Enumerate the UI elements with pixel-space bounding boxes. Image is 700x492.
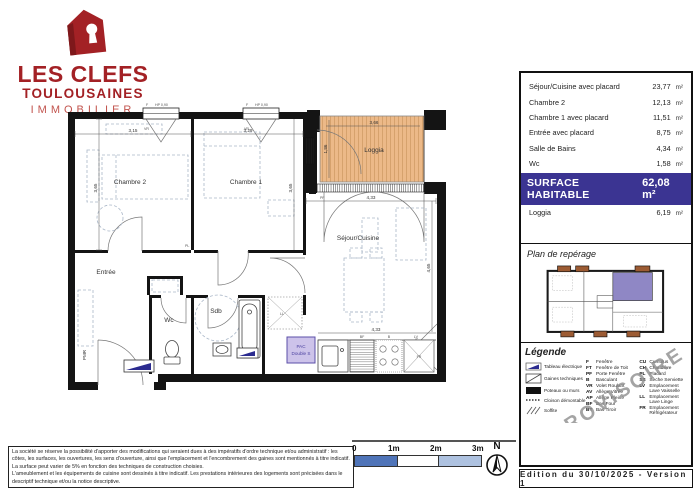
area-unit: m² — [676, 161, 683, 168]
pmr-label: PMR — [82, 349, 87, 360]
area-value: 23,77 — [652, 82, 670, 91]
area-unit: m² — [676, 210, 683, 217]
area-row: Wc 1,58m² — [527, 156, 685, 171]
legend-symbol-row: Soffite — [525, 406, 586, 415]
scale-segment-3 — [439, 456, 481, 466]
fr-tag: FR — [417, 355, 422, 359]
area-value: 6,19 — [656, 208, 670, 217]
legend-abbr-row: LVEmplacement Lave Vaisselle — [639, 384, 687, 394]
removable-partition-icon — [525, 397, 542, 403]
abbr-key: FR — [639, 406, 649, 416]
legend-abbr-right-column: CUCumulus CHChaudière PLPlacard SSSèche … — [639, 360, 687, 418]
kitchen-width-dim: 4,33 — [372, 327, 381, 332]
legend-section: Légende PROVISOIRE Tableau électrique Ga… — [521, 342, 691, 423]
disclaimer-box: La société se réserve la possibilité d'a… — [8, 446, 354, 488]
sdb-label: Sdb — [210, 308, 222, 315]
legend-abbr-row: FREmplacement Réfrigérateur — [639, 406, 687, 416]
areas-table: Séjour/Cuisine avec placard 23,77m² Cham… — [521, 73, 691, 221]
sejour-label: Séjour/Cuisine — [337, 235, 380, 242]
pl-tag: PL — [185, 244, 189, 248]
abbr-key: BT — [586, 408, 596, 413]
abbr-key: VR — [586, 384, 596, 389]
legend-symbol-label: Tableau électrique — [544, 364, 582, 369]
abbr-value: Allège Vitrée — [596, 390, 623, 395]
north-arrow: N — [482, 442, 512, 483]
legend-symbol-label: Cloison démontable — [544, 398, 585, 403]
abbr-value: Cumulus — [649, 360, 668, 365]
area-unit: m² — [676, 100, 683, 107]
pac-box: PAC Double S — [287, 337, 315, 363]
legend-abbr-row: PFPorte Fenêtre — [586, 372, 639, 377]
area-value: 4,34 — [656, 144, 670, 153]
compass-icon — [484, 452, 510, 478]
abbr-value: Emplacement Lave Linge — [649, 395, 687, 405]
floor-plan-page: LES CLEFS TOULOUSAINES IMMOBILIER — [0, 0, 700, 492]
chambre1-label: Chambre 1 — [230, 179, 263, 186]
area-value: 8,75 — [656, 128, 670, 137]
abbr-value: Basculant — [596, 378, 617, 383]
legend-abbr-row: FTFenêtre de Toit — [586, 366, 639, 371]
legend-abbr-row: BBasculant — [586, 378, 639, 383]
window-vr-tag: VR — [144, 127, 149, 131]
kitchen-units: FR BF B LV — [318, 335, 436, 372]
pac-label-2: Double S — [292, 351, 311, 356]
loggia-width-dim: 3,66 — [370, 120, 379, 125]
area-label: Entrée avec placard — [529, 128, 594, 137]
wall-post-icon — [525, 386, 542, 395]
abbr-value: Emplacement Réfrigérateur — [649, 406, 687, 416]
abbr-key: SS — [639, 378, 649, 383]
legend-abbr-row: SSSèche Serviette — [639, 378, 687, 383]
area-row: Chambre 2 12,13m² — [527, 94, 685, 109]
plan-reperage-section: Plan de repérage — [521, 243, 691, 342]
abbr-value: Chaudière — [649, 366, 671, 371]
legend-symbol-row: Poteaux ou murs — [525, 386, 586, 395]
abbr-value: Fenêtre de Toit — [596, 366, 628, 371]
abbr-value: Fenêtre — [596, 360, 613, 365]
abbr-key: F — [586, 360, 596, 365]
area-label: Salle de Bains — [529, 144, 576, 153]
abbr-key: LL — [639, 395, 649, 405]
window-chambre2: F HP 0,90 VR — [143, 103, 179, 142]
area-label: Séjour/Cuisine avec placard — [529, 82, 620, 91]
abbr-key: LV — [639, 384, 649, 394]
area-unit: m² — [676, 130, 683, 137]
legend-abbr-row: FFenêtre — [586, 360, 639, 365]
scale-bar-segments — [354, 455, 482, 467]
abbr-value: Emplacement Lave Vaisselle — [649, 384, 687, 394]
abbr-value: Allège Pleine — [596, 396, 624, 401]
surface-habitable-label: SURFACE HABITABLE — [527, 177, 642, 201]
legend-abbr-row: BTBas Tiroir — [586, 408, 639, 413]
legend-abbr-row: PLPlacard — [639, 372, 687, 377]
area-label: Wc — [529, 159, 540, 168]
legend-abbr-left-column: FFenêtre FTFenêtre de Toit PFPorte Fenêt… — [586, 360, 639, 418]
window-f-tag: F — [146, 103, 149, 107]
area-value: 12,13 — [652, 98, 670, 107]
scale-segment-2 — [397, 456, 439, 466]
abbr-key: FT — [586, 366, 596, 371]
mini-floor-plan — [527, 261, 687, 341]
wc-label: Wc — [164, 317, 174, 324]
abbr-value: Placard — [649, 372, 665, 377]
ll-tag: LL — [280, 312, 284, 316]
abbr-value: Porte Fenêtre — [596, 372, 625, 377]
chambre1-width-dim: 3,29 — [244, 128, 253, 133]
legend-symbol-row: Tableau électrique — [525, 362, 586, 371]
disclaimer-paragraph-1: La société se réserve la possibilité d'a… — [12, 449, 350, 471]
abbr-key: PF — [586, 372, 596, 377]
loggia-height-dim: 1,86 — [323, 144, 328, 153]
window-chambre1: F HP 0,90 VR — [243, 103, 279, 142]
plan-reperage-title: Plan de repérage — [527, 249, 685, 259]
soffit-icon — [525, 406, 542, 415]
abbr-key: AV — [586, 390, 596, 395]
surface-habitable-value: 62,08 m² — [642, 177, 685, 201]
area-row: Séjour/Cuisine avec placard 23,77m² — [527, 79, 685, 94]
area-label: Loggia — [529, 208, 551, 217]
chambre2-width-dim: 3,15 — [129, 128, 138, 133]
abbr-key: BF — [586, 402, 596, 407]
area-row: Chambre 1 avec placard 11,51m² — [527, 110, 685, 125]
abbr-key: CU — [639, 360, 649, 365]
surface-habitable-banner: SURFACE HABITABLE 62,08 m² — [521, 173, 691, 205]
legend-symbol-row: Gaines techniques — [525, 373, 586, 384]
legend-abbr-row: VRVolet Roulant — [586, 384, 639, 389]
kitchen-tag-1: BF — [360, 335, 365, 339]
interior-walls — [75, 119, 317, 374]
loggia-area-row: Loggia 6,19m² — [527, 205, 685, 220]
legend-abbr-row: CHChaudière — [639, 366, 687, 371]
area-value: 1,58 — [656, 159, 670, 168]
scale-segment-1 — [355, 456, 397, 466]
legend-symbols-column: Tableau électrique Gaines techniques Pot… — [525, 360, 586, 418]
bay-pf-tag: PF — [320, 196, 325, 200]
legend-abbr-row: LLEmplacement Lave Linge — [639, 395, 687, 405]
scale-tick: 1m — [388, 444, 400, 453]
closet-niche — [152, 280, 178, 292]
legend-symbol-row: Cloison démontable — [525, 397, 586, 403]
entree-label: Entrée — [96, 269, 116, 276]
sejour-height-dim: 4,65 — [426, 263, 431, 272]
chambre1-height-dim: 3,65 — [288, 183, 293, 192]
kitchen-tag-3: LV — [414, 335, 419, 339]
electrical-panel-icon — [525, 362, 542, 371]
area-row: Entrée avec placard 8,75m² — [527, 125, 685, 140]
scale-tick: 2m — [430, 444, 442, 453]
legend-symbol-label: Gaines techniques — [544, 376, 583, 381]
window-hp-tag: HP 0,90 — [255, 103, 268, 107]
kitchen-tag-2: B — [388, 335, 391, 339]
area-value: 11,51 — [653, 113, 671, 122]
sejour-width-dim: 4,33 — [367, 195, 376, 200]
loggia-zone: Loggia 3,66 1,86 — [320, 116, 424, 182]
legend-abbr-row: APAllège Pleine — [586, 396, 639, 401]
legend-abbr-row: BFBas Four — [586, 402, 639, 407]
area-label: Chambre 1 avec placard — [529, 113, 609, 122]
abbr-value: Volet Roulant — [596, 384, 625, 389]
side-window — [305, 138, 314, 164]
legend-abbr-row: CUCumulus — [639, 360, 687, 365]
abbr-key: AP — [586, 396, 596, 401]
area-label: Chambre 2 — [529, 98, 565, 107]
north-label: N — [482, 442, 512, 452]
abbr-value: Sèche Serviette — [649, 378, 683, 383]
chambre2-label: Chambre 2 — [114, 179, 147, 186]
legend-symbol-label: Soffite — [544, 408, 557, 413]
area-unit: m² — [676, 84, 683, 91]
floor-plan-drawing: Loggia 3,66 1,86 PF F HP 0,90 VR F HP 0,… — [58, 100, 454, 394]
window-f-tag: F — [246, 103, 249, 107]
area-row: Salle de Bains 4,34m² — [527, 141, 685, 156]
scale-tick: 0 — [352, 444, 356, 453]
chambre2-height-dim: 3,65 — [93, 183, 98, 192]
abbr-key: PL — [639, 372, 649, 377]
pac-label-1: PAC — [296, 344, 306, 349]
area-unit: m² — [676, 146, 683, 153]
disclaimer-paragraph-2: L'ameublement et les équipements de cuis… — [12, 471, 350, 486]
house-key-logo-icon — [48, 6, 118, 58]
abbr-value: Bas Tiroir — [596, 408, 616, 413]
abbr-value: Bas Four — [596, 402, 615, 407]
info-panel: Séjour/Cuisine avec placard 23,77m² Cham… — [519, 71, 693, 467]
window-hp-tag: HP 0,90 — [155, 103, 168, 107]
edition-bar: Edition du 30/10/2025 - Version 1 — [519, 469, 693, 488]
brand-line-1: LES CLEFS — [8, 63, 158, 86]
area-unit: m² — [676, 115, 683, 122]
technical-duct-icon — [525, 373, 542, 384]
legend-title: Légende — [525, 347, 687, 358]
laundry-unit: LL — [268, 297, 302, 329]
bay-window — [316, 184, 424, 192]
abbr-key: B — [586, 378, 596, 383]
legend-symbol-label: Poteaux ou murs — [544, 388, 579, 393]
abbr-key: CH — [639, 366, 649, 371]
legend-abbr-row: AVAllège Vitrée — [586, 390, 639, 395]
loggia-label: Loggia — [364, 147, 384, 154]
